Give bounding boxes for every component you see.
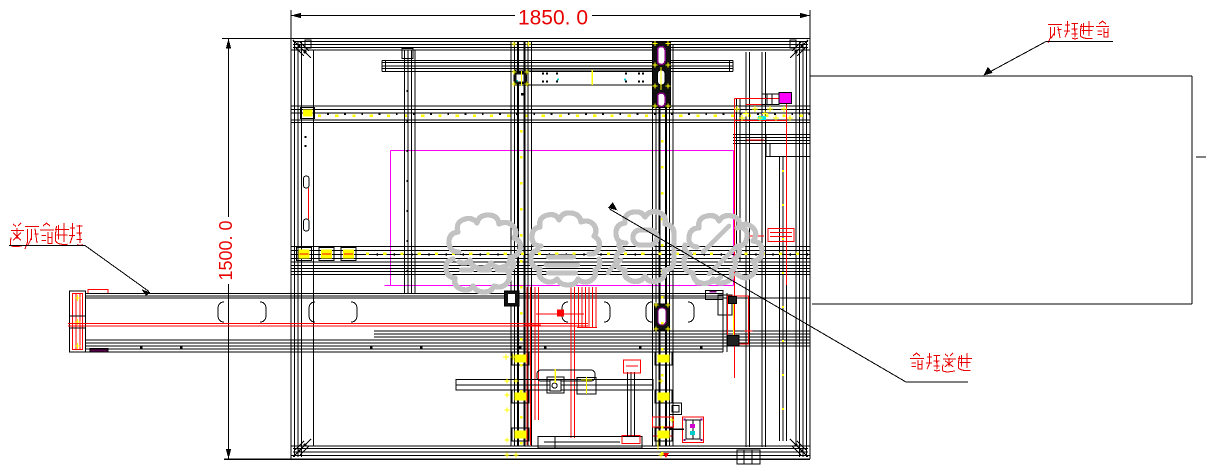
svg-text:1500. 0: 1500. 0	[216, 220, 236, 280]
svg-text:1850. 0: 1850. 0	[518, 7, 588, 30]
